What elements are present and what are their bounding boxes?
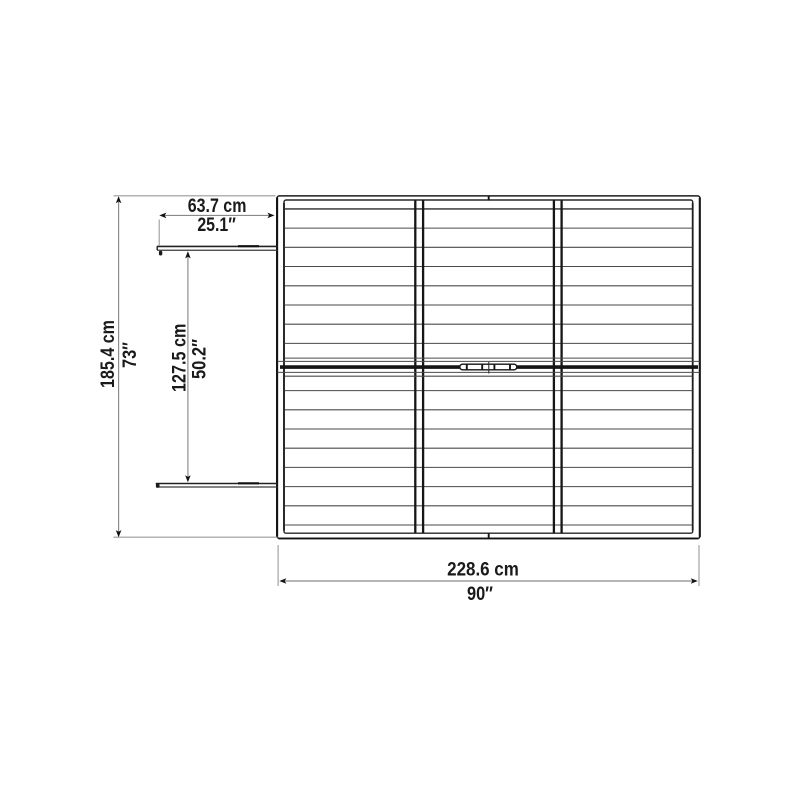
svg-text:25.1″: 25.1″ [197,215,236,236]
svg-text:63.7 cm: 63.7 cm [188,196,247,217]
svg-text:73″: 73″ [120,342,141,368]
svg-text:90″: 90″ [467,584,493,605]
svg-text:50.2″: 50.2″ [190,339,211,379]
svg-text:228.6 cm: 228.6 cm [447,560,519,581]
svg-text:185.4 cm: 185.4 cm [98,320,119,388]
svg-text:127.5 cm: 127.5 cm [169,324,190,392]
